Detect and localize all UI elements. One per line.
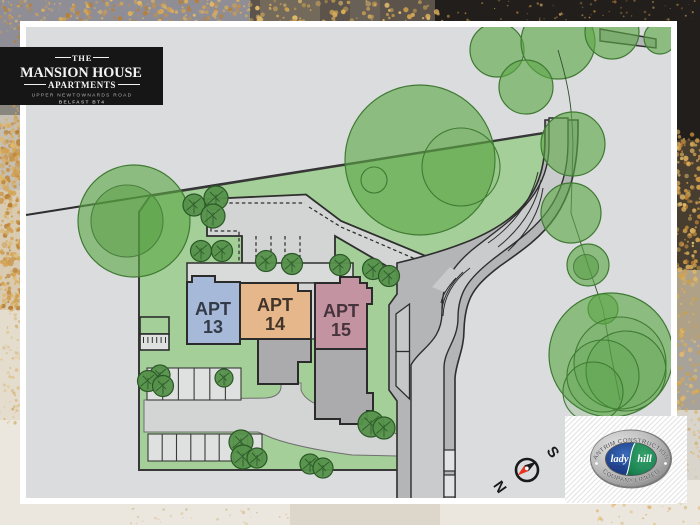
svg-text:hill: hill: [637, 454, 652, 465]
svg-text:14: 14: [265, 314, 285, 334]
svg-text:APT: APT: [257, 295, 293, 315]
svg-text:15: 15: [331, 320, 351, 340]
svg-text:13: 13: [203, 317, 223, 337]
svg-text:APT: APT: [195, 299, 231, 319]
svg-text:BELFAST BT4: BELFAST BT4: [59, 100, 106, 106]
svg-text:THE: THE: [72, 53, 92, 63]
svg-text:APARTMENTS: APARTMENTS: [48, 80, 116, 90]
svg-text:APT: APT: [323, 301, 359, 321]
svg-text:lady: lady: [610, 454, 628, 465]
svg-text:MANSION HOUSE: MANSION HOUSE: [20, 65, 142, 81]
svg-text:UPPER NEWTOWNARDS ROAD: UPPER NEWTOWNARDS ROAD: [32, 93, 133, 99]
